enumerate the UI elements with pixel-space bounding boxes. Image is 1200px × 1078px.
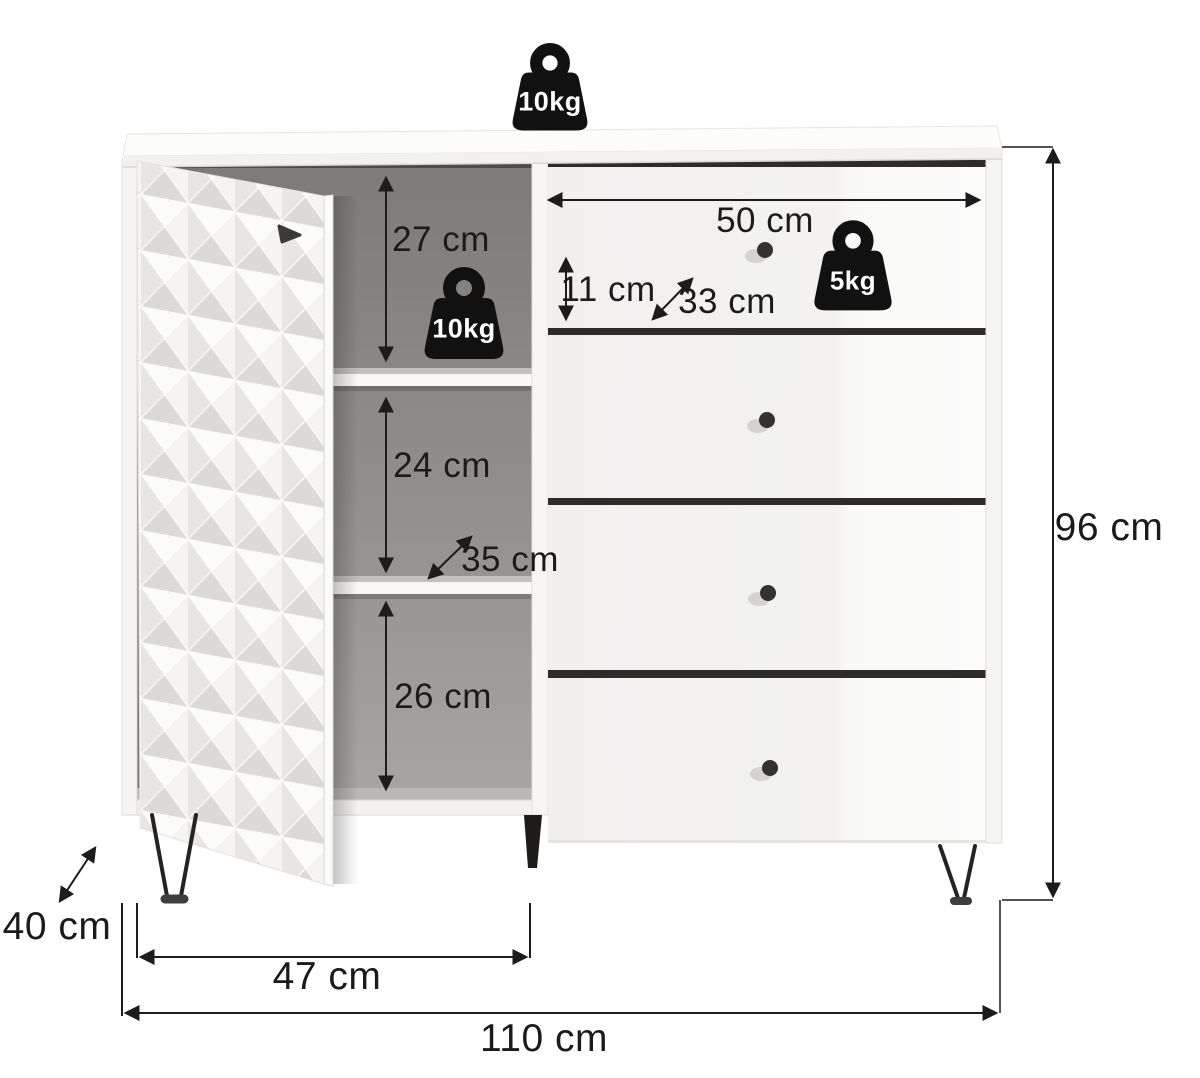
drawer-depth-label: 33 cm [678, 282, 776, 322]
shelf-depth-label: 35 cm [461, 540, 559, 580]
right-side-panel [986, 148, 1002, 843]
arrow-40cm [60, 848, 95, 901]
right-leg [940, 846, 975, 901]
total-height-label: 96 cm [1055, 506, 1164, 550]
left-side-panel [122, 159, 137, 815]
dimension-diagram: 10kg 10kg 5kg 27 cm 24 cm 26 cm 35 cm 50… [0, 0, 1200, 1078]
drawer-load-label: 5kg [830, 266, 876, 297]
total-depth-label: 40 cm [3, 905, 112, 949]
drawer-stack [548, 160, 986, 843]
door-panel [137, 161, 358, 886]
top-load-label: 10kg [518, 87, 582, 118]
middle-leg [524, 815, 542, 868]
shelf-load-label: 10kg [432, 314, 496, 345]
drawer-4 [548, 678, 986, 843]
compartment-bottom-height-label: 26 cm [394, 677, 492, 717]
drawer-gap [548, 328, 986, 335]
cabinet-top [123, 126, 1002, 167]
center-partition [532, 159, 548, 815]
cabinet-diagram [0, 0, 1200, 1078]
drawer-height-label: 11 cm [560, 270, 655, 310]
door-section-width-label: 47 cm [273, 955, 382, 999]
compartment-middle-height-label: 24 cm [393, 446, 491, 486]
total-width-label: 110 cm [480, 1017, 608, 1061]
drawer-gap [548, 498, 986, 505]
drawer-gap [548, 670, 986, 678]
compartment-top-height-label: 27 cm [392, 220, 490, 260]
drawer-width-label: 50 cm [716, 201, 814, 241]
